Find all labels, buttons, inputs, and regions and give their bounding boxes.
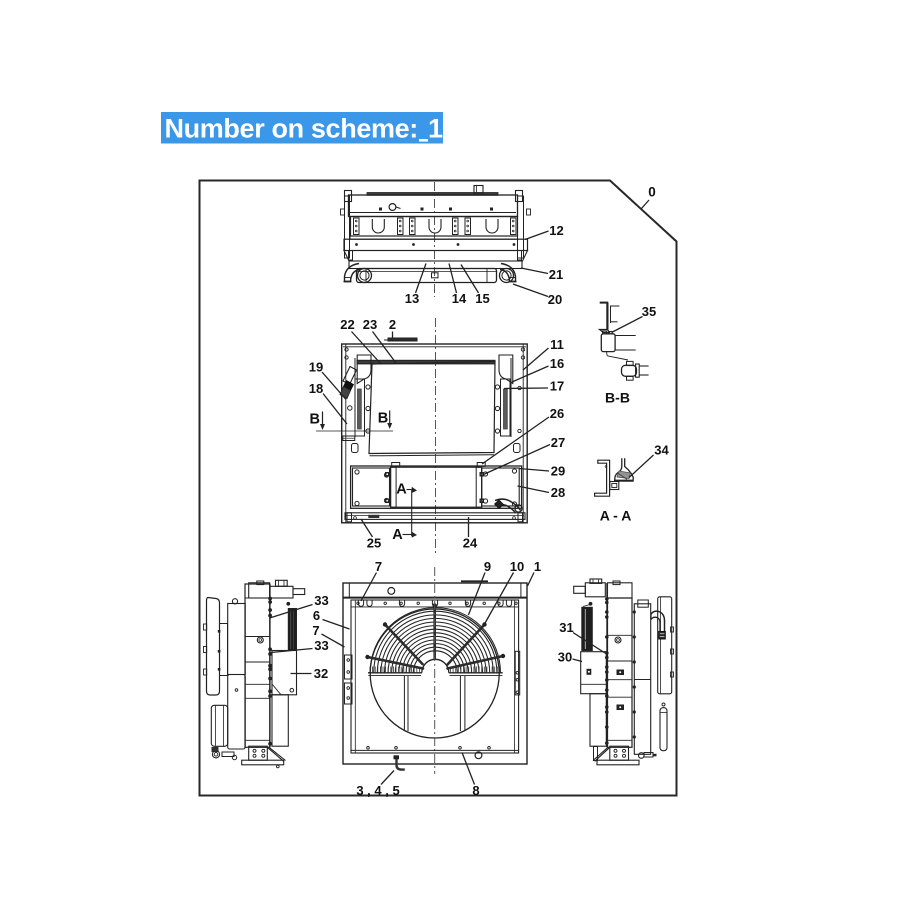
svg-text:19: 19	[309, 360, 323, 375]
svg-text:22: 22	[340, 317, 354, 332]
svg-text:11: 11	[550, 337, 564, 352]
svg-text:15: 15	[475, 291, 489, 306]
svg-text:2: 2	[389, 317, 396, 332]
svg-text:3 , 4 , 5: 3 , 4 , 5	[356, 783, 399, 798]
svg-text:35: 35	[642, 304, 656, 319]
svg-text:9: 9	[484, 559, 491, 574]
svg-text:25: 25	[367, 536, 381, 551]
svg-text:26: 26	[550, 406, 564, 421]
svg-text:31: 31	[559, 620, 573, 635]
svg-text:20: 20	[548, 292, 562, 307]
svg-text:A: A	[392, 527, 403, 543]
svg-text:24: 24	[463, 536, 478, 551]
svg-text:7: 7	[375, 559, 382, 574]
svg-text:32: 32	[314, 666, 328, 681]
svg-text:0: 0	[648, 185, 656, 200]
svg-text:B-B: B-B	[605, 390, 630, 406]
svg-text:34: 34	[654, 443, 669, 458]
svg-text:13: 13	[405, 291, 419, 306]
svg-text:29: 29	[551, 464, 565, 479]
svg-text:1: 1	[534, 559, 541, 574]
svg-text:23: 23	[363, 317, 377, 332]
svg-text:10: 10	[510, 559, 524, 574]
svg-text:21: 21	[549, 267, 563, 282]
svg-text:1: 1	[428, 114, 443, 144]
svg-text:18: 18	[309, 381, 323, 396]
svg-text:B: B	[378, 411, 388, 427]
svg-text:27: 27	[551, 435, 565, 450]
svg-text:A - A: A - A	[600, 508, 632, 524]
svg-text:33: 33	[314, 638, 328, 653]
svg-text:28: 28	[551, 485, 565, 500]
svg-text:17: 17	[550, 379, 564, 394]
svg-text:7: 7	[312, 623, 319, 638]
svg-text:8: 8	[472, 783, 479, 798]
svg-text:14: 14	[452, 291, 467, 306]
svg-text:A: A	[396, 482, 407, 498]
svg-text:6: 6	[313, 608, 320, 623]
svg-text:33: 33	[314, 593, 328, 608]
svg-text:12: 12	[549, 223, 563, 238]
svg-text:B: B	[309, 412, 319, 428]
svg-text:30: 30	[558, 650, 572, 665]
svg-text:Number on scheme:: Number on scheme:	[165, 114, 418, 144]
svg-text:16: 16	[550, 356, 564, 371]
